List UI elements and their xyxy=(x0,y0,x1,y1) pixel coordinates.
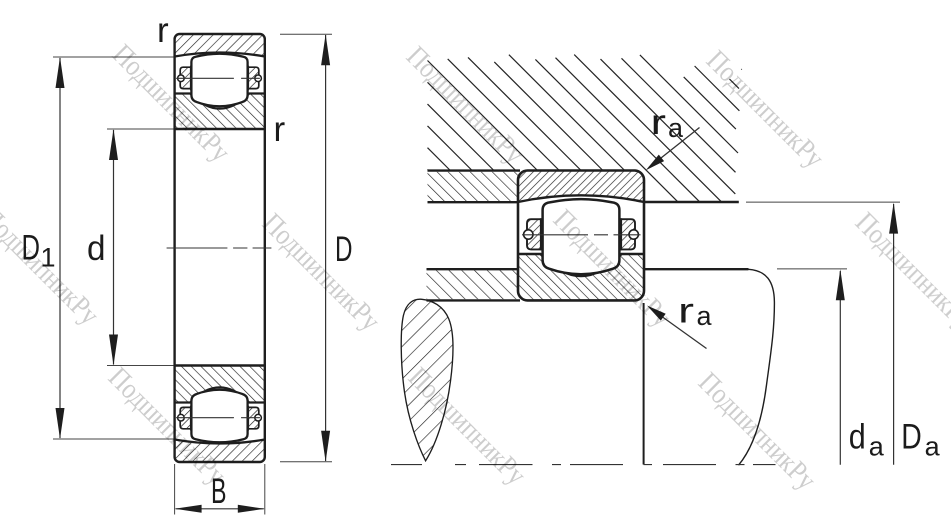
svg-text:r: r xyxy=(157,11,169,50)
svg-text:a: a xyxy=(869,432,885,462)
svg-text:a: a xyxy=(668,113,684,143)
svg-text:D: D xyxy=(335,230,353,269)
svg-text:r: r xyxy=(678,292,694,331)
svg-text:D: D xyxy=(901,418,922,457)
svg-text:d: d xyxy=(849,418,866,457)
svg-text:a: a xyxy=(697,301,713,331)
svg-text:a: a xyxy=(925,432,941,462)
svg-text:r: r xyxy=(651,103,667,142)
svg-text:r: r xyxy=(274,110,286,149)
svg-text:d: d xyxy=(87,229,106,268)
